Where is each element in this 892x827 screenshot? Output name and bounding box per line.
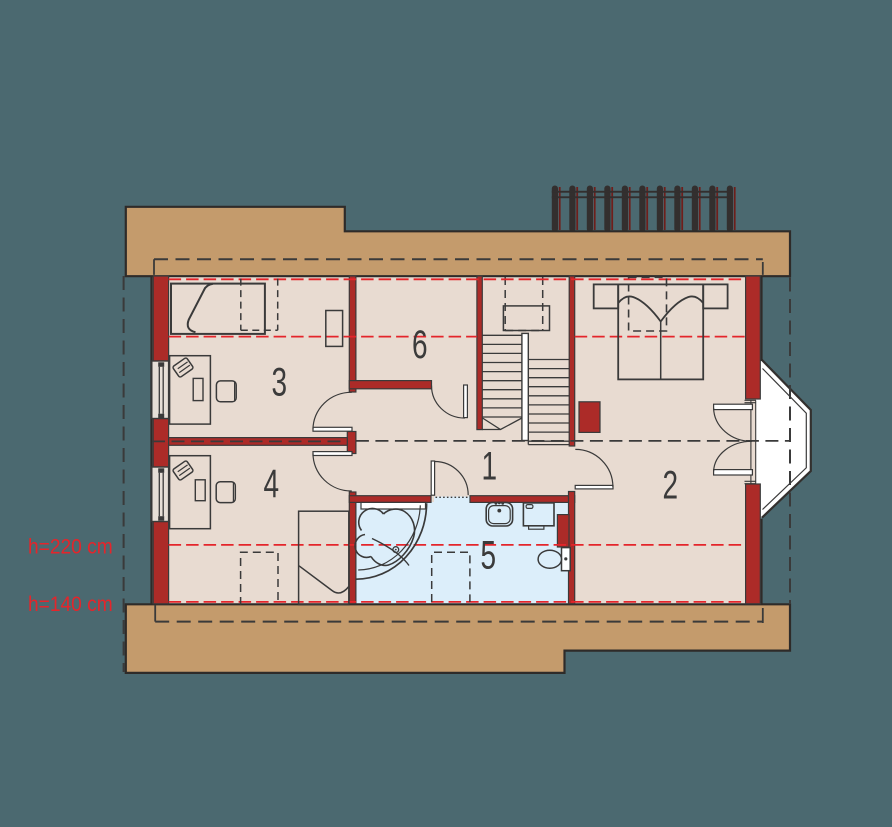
svg-text:4: 4	[264, 462, 280, 506]
svg-text:6: 6	[412, 323, 428, 367]
svg-text:1: 1	[482, 445, 498, 489]
svg-text:5: 5	[481, 534, 497, 578]
svg-text:h=220 cm: h=220 cm	[28, 535, 113, 559]
svg-text:2: 2	[663, 464, 679, 508]
svg-text:3: 3	[272, 361, 288, 405]
svg-text:h=140 cm: h=140 cm	[28, 593, 113, 617]
